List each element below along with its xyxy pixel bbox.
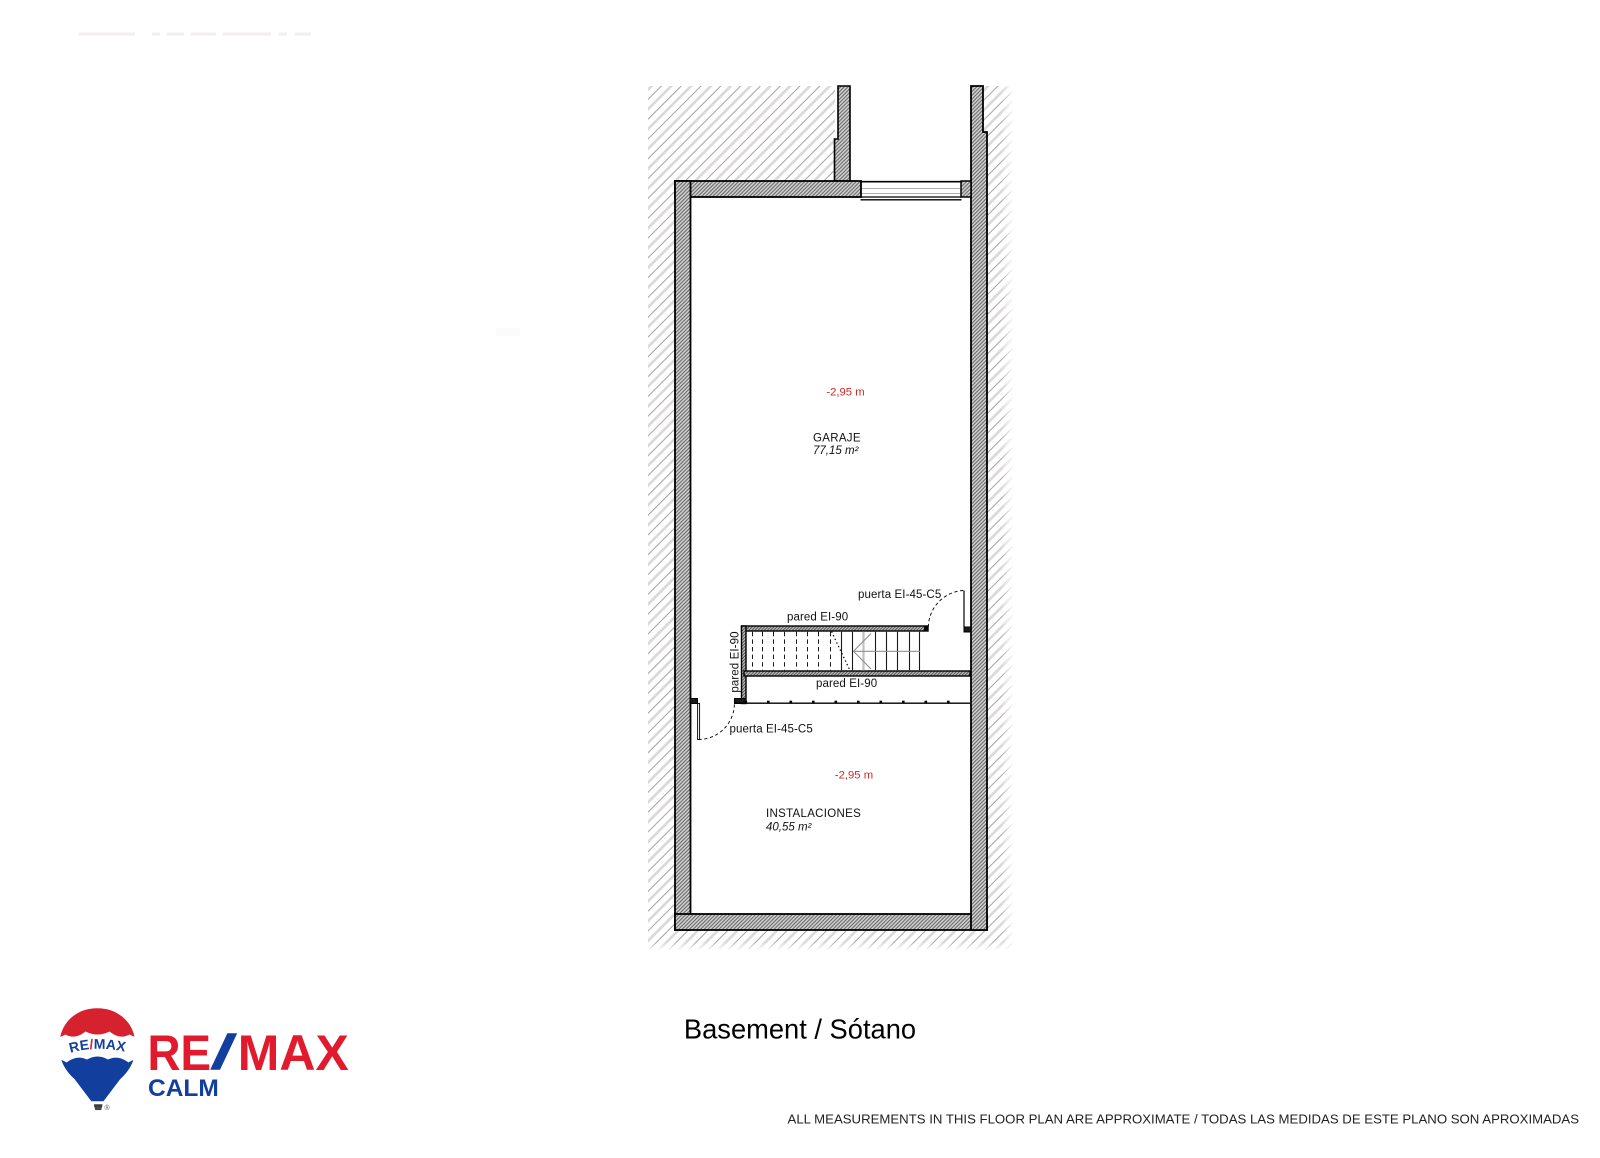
svg-text:40,55 m²: 40,55 m²: [766, 822, 813, 834]
svg-text:puerta EI-45-C5: puerta EI-45-C5: [730, 724, 813, 736]
svg-text:77,15 m²: 77,15 m²: [813, 445, 860, 457]
svg-text:ALL MEASUREMENTS IN THIS FLOOR: ALL MEASUREMENTS IN THIS FLOOR PLAN ARE …: [788, 1112, 1580, 1127]
svg-text:CALM: CALM: [148, 1075, 219, 1102]
svg-text:MAX: MAX: [238, 1024, 349, 1081]
svg-text:GARAJE: GARAJE: [813, 433, 861, 445]
svg-text:RE: RE: [148, 1024, 212, 1081]
svg-text:INSTALACIONES: INSTALACIONES: [766, 808, 861, 820]
svg-text:pared EI-90: pared EI-90: [787, 612, 848, 624]
svg-text:Basement / Sótano: Basement / Sótano: [684, 1014, 916, 1045]
svg-text:®: ®: [105, 1104, 111, 1112]
svg-text:-2,95 m: -2,95 m: [826, 387, 864, 399]
svg-text:pared EI-90: pared EI-90: [816, 678, 877, 690]
svg-text:pared EI-90: pared EI-90: [729, 631, 741, 692]
svg-text:-2,95 m: -2,95 m: [835, 769, 873, 781]
svg-text:puerta EI-45-C5: puerta EI-45-C5: [858, 589, 941, 601]
